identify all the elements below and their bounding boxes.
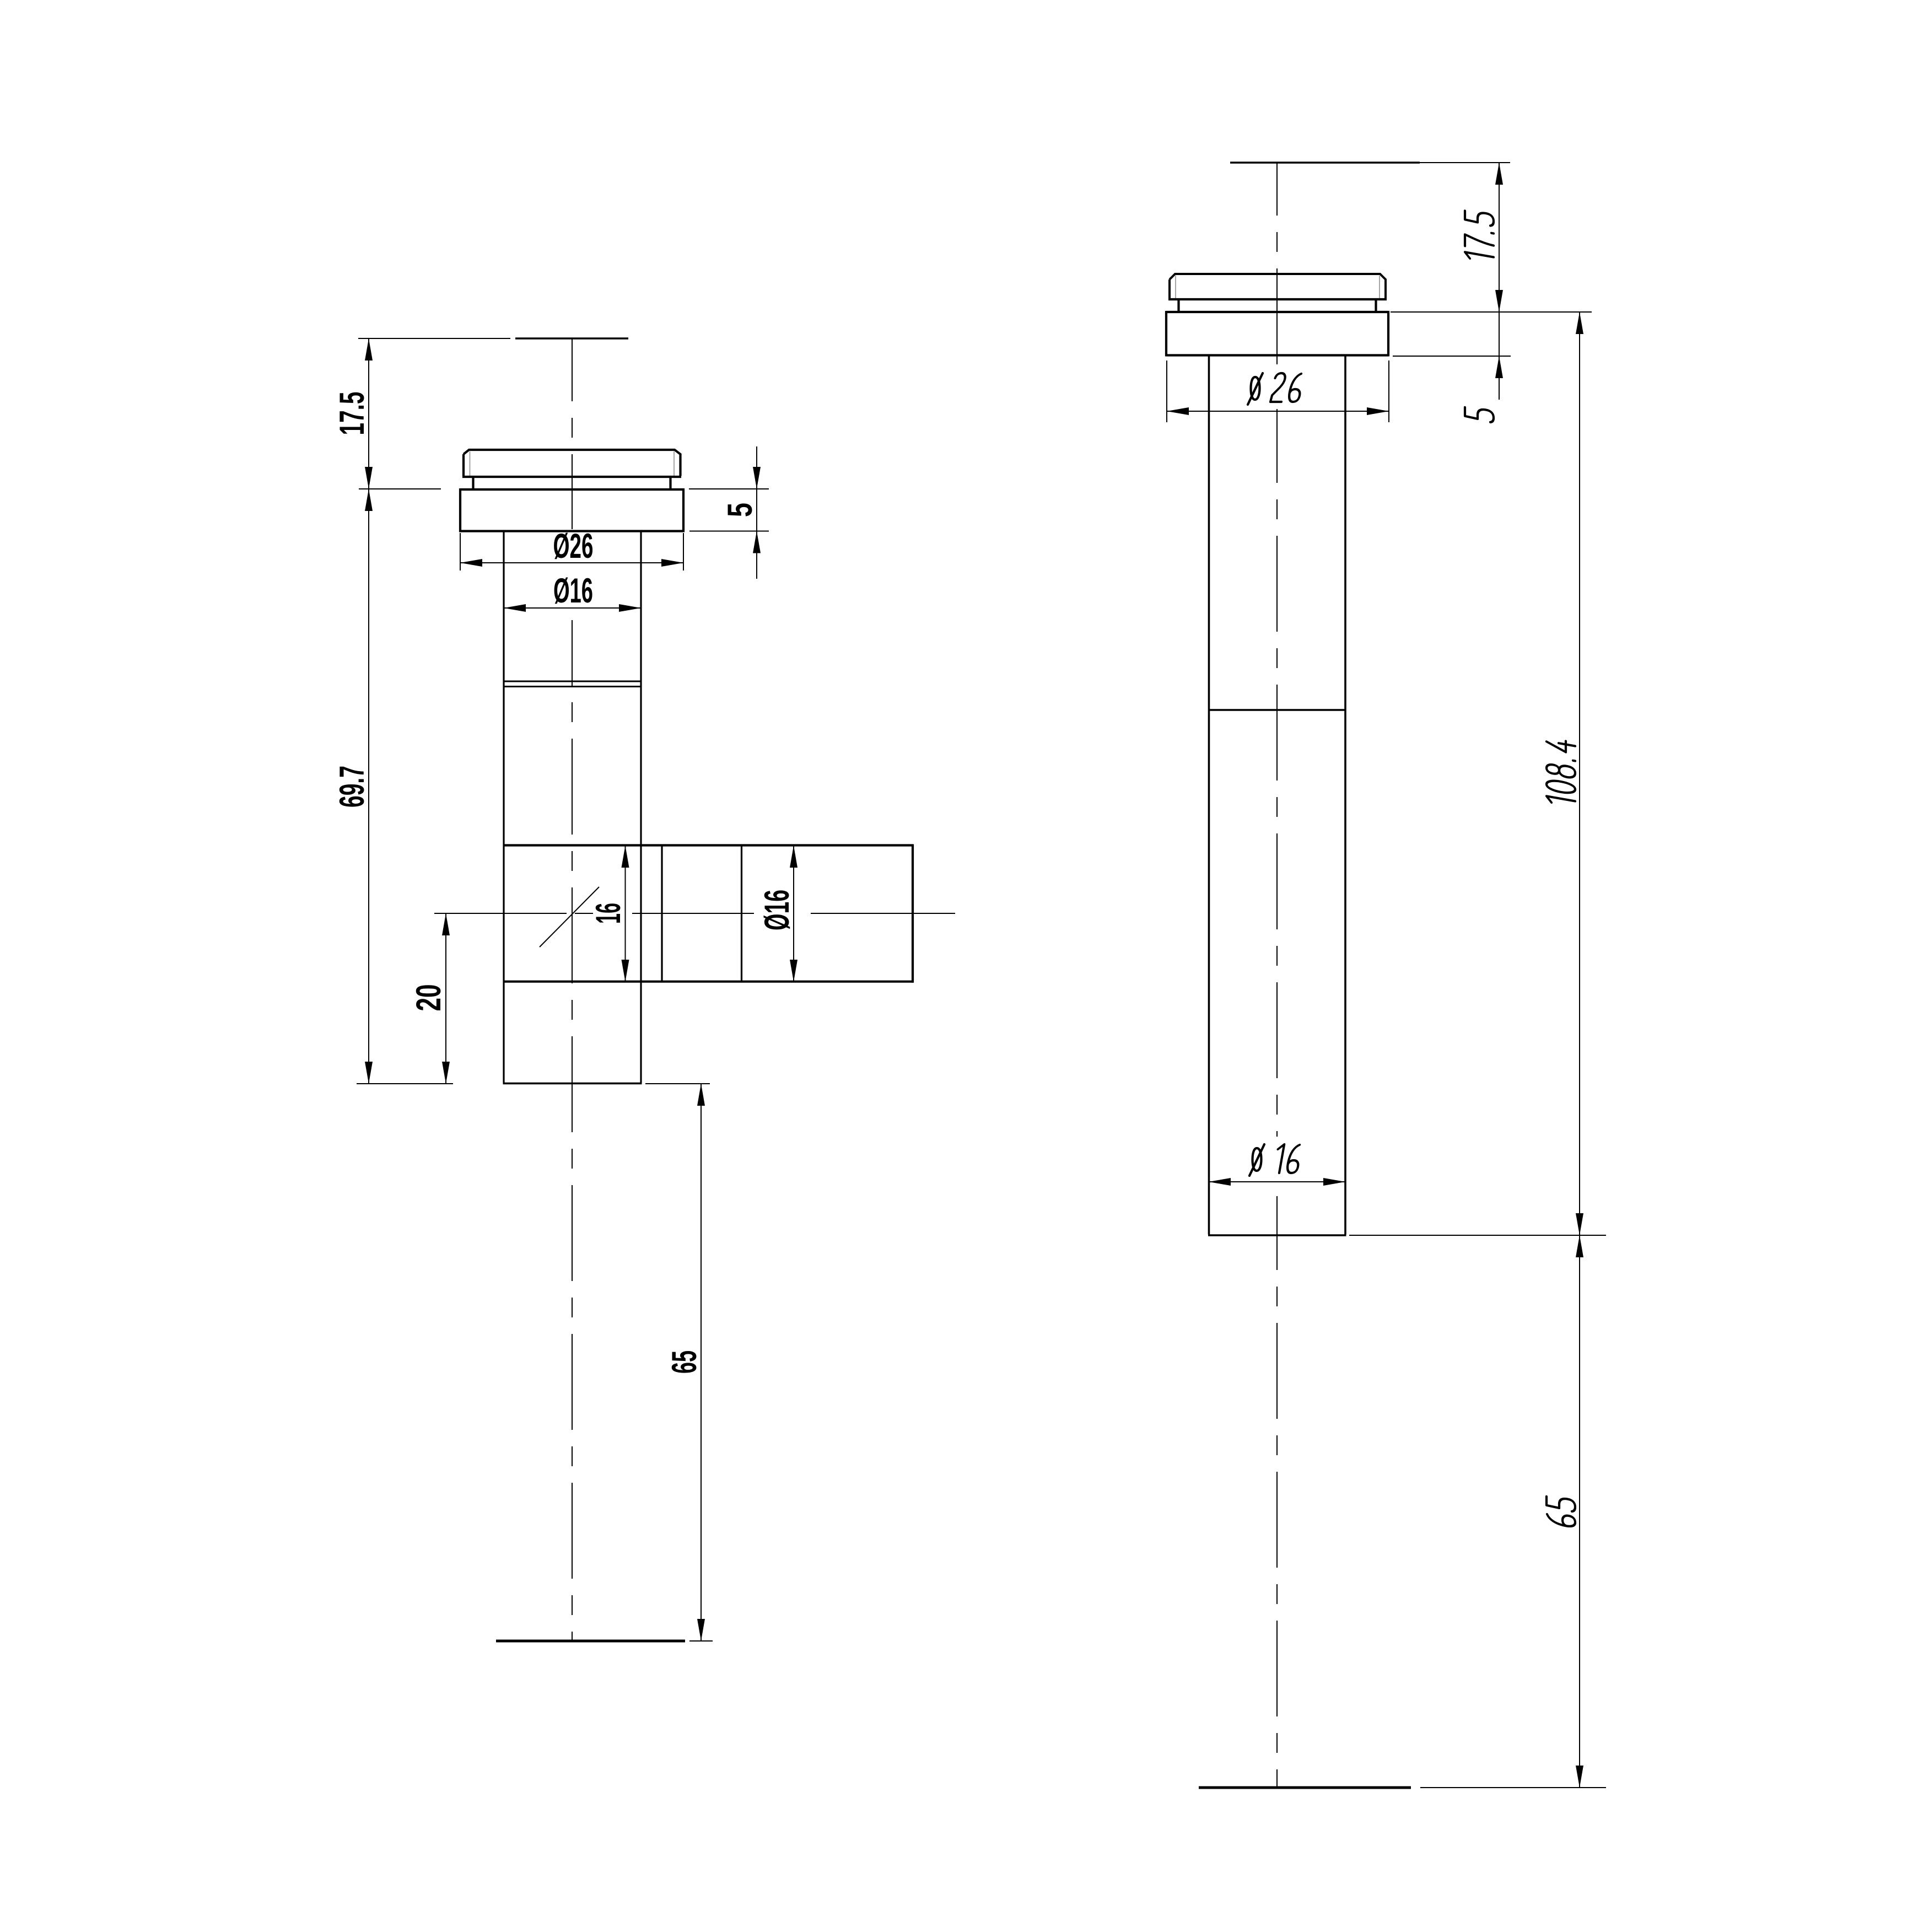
svg-text:Ø26: Ø26 [553,527,594,566]
svg-text:20: 20 [409,984,448,1011]
svg-text:Ø16: Ø16 [758,890,796,930]
svg-text:16: 16 [589,903,628,924]
svg-text:65: 65 [665,1350,704,1374]
svg-text:69.7: 69.7 [333,766,371,808]
svg-text:17.5: 17.5 [333,392,371,435]
svg-text:Ø16: Ø16 [553,572,593,610]
svg-text:5: 5 [721,503,759,517]
